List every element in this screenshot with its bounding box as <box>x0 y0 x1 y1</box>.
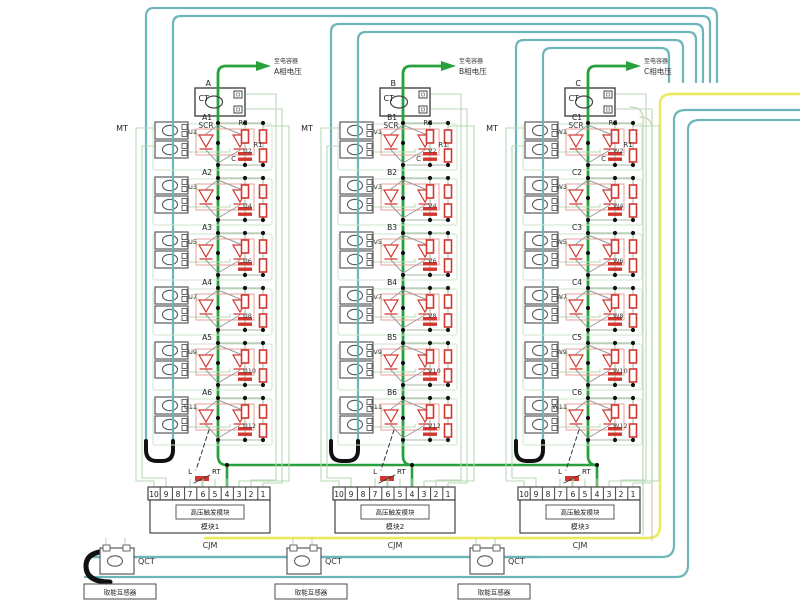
resistor-r1-body <box>445 204 452 217</box>
thyristor-label: W4 <box>613 202 624 210</box>
resistor-r1-body <box>445 295 452 308</box>
r1-label: R1 <box>253 141 262 149</box>
junction-dot <box>446 176 450 180</box>
terminal-number: 3 <box>237 490 242 499</box>
junction-dot <box>216 306 220 310</box>
resistor-r1-body <box>260 259 267 272</box>
capacitor-plate <box>238 378 252 381</box>
thyristor-label: U1 <box>188 128 197 136</box>
junction-dot <box>586 361 590 365</box>
valve-stage: A6U11U12 <box>153 388 272 445</box>
junction-dot <box>401 141 405 145</box>
node-label: C2 <box>572 168 582 177</box>
resistor-r1-body <box>445 405 452 418</box>
resistor-r2-body <box>242 240 249 253</box>
gate-pin-square <box>552 309 557 314</box>
ct-label: CT <box>384 94 395 103</box>
thyristor-label: V10 <box>428 367 441 375</box>
thyristor-symbol <box>199 135 213 147</box>
junction-dot <box>613 163 617 167</box>
valve-stage: A1U1U2SCRR2R1C <box>153 113 272 170</box>
cap-label: C <box>416 155 421 163</box>
junction-dot <box>586 141 590 145</box>
junction-dot <box>631 218 635 222</box>
resistor-r1-body <box>630 204 637 217</box>
thyristor-symbol <box>199 245 213 257</box>
rt-label: RT <box>397 468 406 476</box>
gate-pin-square <box>367 242 372 247</box>
thyristor-symbol <box>384 245 398 257</box>
junction-dot <box>446 286 450 290</box>
resistor-r2-body <box>242 185 249 198</box>
resistor-r2-body <box>612 405 619 418</box>
thyristor-label: V1 <box>373 128 382 136</box>
valve-stage: B4V7V8 <box>338 278 457 335</box>
capacitor-plate <box>608 378 622 381</box>
terminal-number: 10 <box>519 490 529 499</box>
gate-pin-square <box>182 419 187 424</box>
gate-pin-square <box>367 352 372 357</box>
module-number-label: 模块1 <box>201 522 219 531</box>
junction-dot <box>428 176 432 180</box>
resistor-r1-body <box>630 424 637 437</box>
schematic-canvas: 至电容器A相电压ACTMTA1U1U2SCRR2R1CA2U3U4A3U5U6A… <box>0 0 800 600</box>
module-number-label: 模块3 <box>571 522 589 531</box>
junction-dot <box>586 286 590 290</box>
cable-u-bend <box>331 441 358 461</box>
trigger-module-inner-label: 高压触发模块 <box>191 508 231 517</box>
resistor-r1-body <box>630 185 637 198</box>
phase-column-C: 至电容器C相电压CCTMTC1W1W2SCRR2R1CC2W3W4C3W5W6C… <box>486 40 683 550</box>
gate-pin-square <box>552 151 557 156</box>
junction-dot <box>631 341 635 345</box>
resistor-r1-body <box>630 369 637 382</box>
resistor-r1-body <box>260 295 267 308</box>
junction-dot <box>216 231 220 235</box>
l-label: L <box>558 468 562 476</box>
resistor-r1-body <box>260 185 267 198</box>
thyristor-label: W11 <box>552 403 567 411</box>
scr-label: SCR <box>568 121 583 130</box>
terminal-number: 7 <box>373 490 378 499</box>
valve-stage: C1W1W2SCRR2R1C <box>523 113 642 170</box>
gate-pin-square <box>182 309 187 314</box>
dashed-thermal-link <box>196 430 209 470</box>
bottom-device: 取能互感器 <box>84 584 156 599</box>
gate-pin-square <box>182 199 187 204</box>
junction-dot <box>613 273 617 277</box>
gate-pin-square <box>367 180 372 185</box>
circuit-schematic: 至电容器A相电压ACTMTA1U1U2SCRR2R1CA2U3U4A3U5U6A… <box>0 0 800 600</box>
ct-terminal-square <box>419 91 427 98</box>
junction-dot <box>261 121 265 125</box>
gate-pin-square <box>182 345 187 350</box>
terminal-number: 1 <box>261 490 266 499</box>
gate-pin-square <box>367 206 372 211</box>
thyristor-symbol <box>384 300 398 312</box>
valve-stage: A2U3U4 <box>153 168 272 225</box>
trigger-module-inner-label: 高压触发模块 <box>376 508 416 517</box>
resistor-r1-body <box>445 369 452 382</box>
valve-stage: C2W3W4 <box>523 168 642 225</box>
junction-dot <box>401 328 405 332</box>
junction-dot <box>446 218 450 222</box>
cap-label: C <box>231 155 236 163</box>
junction-dot <box>216 383 220 387</box>
junction-dot <box>216 196 220 200</box>
thyristor-label: U5 <box>188 238 197 246</box>
gate-pin-square <box>552 364 557 369</box>
resistor-r1-body <box>630 350 637 363</box>
phase-arrow-line <box>218 66 256 90</box>
thyristor-label: V8 <box>428 312 437 320</box>
junction-dot <box>243 341 247 345</box>
gate-pin-square <box>367 426 372 431</box>
terminal-number: 9 <box>534 490 539 499</box>
capacitor-plate <box>238 213 252 216</box>
terminal-number: 10 <box>334 490 344 499</box>
terminal-number: 8 <box>546 490 551 499</box>
junction-dot <box>243 286 247 290</box>
resistor-r2-body <box>427 130 434 143</box>
thyristor-label: W5 <box>556 238 567 246</box>
terminal-number: 3 <box>422 490 427 499</box>
node-label: B2 <box>387 168 397 177</box>
terminal-number: 6 <box>201 490 206 499</box>
ct-terminal-square <box>604 91 612 98</box>
valve-stage: A3U5U6 <box>153 223 272 280</box>
gate-pin-square <box>552 206 557 211</box>
thyristor-symbol <box>384 135 398 147</box>
junction-dot <box>243 328 247 332</box>
valve-stage: B5V9V10 <box>338 333 457 390</box>
resistor-r2-body <box>242 350 249 363</box>
thyristor-label: W2 <box>613 147 624 155</box>
gate-pin-square <box>367 132 372 137</box>
qct-label: QCT <box>138 557 155 566</box>
junction-dot <box>261 438 265 442</box>
resistor-r2-body <box>242 295 249 308</box>
arrow-label-line2: A相电压 <box>274 66 302 76</box>
node-label: A3 <box>202 223 212 232</box>
gate-pin-square <box>182 316 187 321</box>
valve-stage: B3V5V6 <box>338 223 457 280</box>
qct-box <box>287 548 321 574</box>
junction-dot <box>428 163 432 167</box>
resistor-r2-body <box>612 350 619 363</box>
terminal-number: 2 <box>249 490 254 499</box>
rt-label: RT <box>582 468 591 476</box>
junction-dot <box>613 438 617 442</box>
junction-dot <box>586 231 590 235</box>
node-label: A6 <box>202 388 212 397</box>
gate-pin-square <box>552 371 557 376</box>
r1-label: R1 <box>438 141 447 149</box>
cjm-label: CJM <box>203 541 218 550</box>
resistor-r2-body <box>242 130 249 143</box>
junction-dot <box>446 121 450 125</box>
junction-dot <box>401 196 405 200</box>
gate-pin-square <box>182 235 187 240</box>
bottom-device-label: 取能互感器 <box>104 588 137 597</box>
junction-dot <box>401 361 405 365</box>
resistor-r1-body <box>260 240 267 253</box>
junction-dot <box>613 286 617 290</box>
terminal-number: 6 <box>571 490 576 499</box>
junction-dot <box>586 251 590 255</box>
junction-dot <box>586 196 590 200</box>
junction-dot <box>261 231 265 235</box>
thyristor-label: U8 <box>243 312 252 320</box>
valve-stage: B1V1V2SCRR2R1C <box>338 113 457 170</box>
resistor-r1-body <box>630 295 637 308</box>
thyristor-label: W6 <box>613 257 624 265</box>
terminal-number: 2 <box>434 490 439 499</box>
valve-stage: B2V3V4 <box>338 168 457 225</box>
resistor-r2-body <box>612 130 619 143</box>
junction-dot <box>631 273 635 277</box>
gate-pin-square <box>367 254 372 259</box>
terminal-number: 4 <box>225 490 230 499</box>
junction-dot <box>586 176 590 180</box>
gate-pin-square <box>182 187 187 192</box>
gate-pin-square <box>367 364 372 369</box>
terminal-number: 5 <box>213 490 218 499</box>
node-label: A5 <box>202 333 212 342</box>
capacitor-plate <box>423 213 437 216</box>
gate-pin-square <box>552 144 557 149</box>
gate-pin-square <box>552 419 557 424</box>
junction-dot <box>216 218 220 222</box>
resistor-r1-body <box>630 259 637 272</box>
thyristor-symbol <box>569 410 583 422</box>
r2-label: R2 <box>423 119 432 127</box>
junction-dot <box>261 273 265 277</box>
qct-pin-square <box>473 545 480 551</box>
thyristor-label: W10 <box>613 367 628 375</box>
junction-dot <box>401 341 405 345</box>
junction-dot <box>446 341 450 345</box>
junction-dot <box>446 231 450 235</box>
junction-dot <box>586 273 590 277</box>
valve-stage: A5U9U10 <box>153 333 272 390</box>
junction-dot <box>261 286 265 290</box>
resistor-r1-body <box>260 350 267 363</box>
gate-pin-square <box>367 199 372 204</box>
bottom-device: 取能互感器 <box>458 584 530 599</box>
resistor-r1-body <box>260 405 267 418</box>
terminal-number: 9 <box>164 490 169 499</box>
resistor-r1-body <box>445 240 452 253</box>
junction-dot <box>631 396 635 400</box>
gate-pin-square <box>182 364 187 369</box>
junction-dot <box>401 273 405 277</box>
gate-pin-square <box>182 290 187 295</box>
qct-box <box>100 548 134 574</box>
capacitor-plate <box>608 158 622 161</box>
thyristor-label: U12 <box>243 422 256 430</box>
junction-dot <box>613 396 617 400</box>
junction-dot <box>401 306 405 310</box>
thyristor-label: W1 <box>556 128 567 136</box>
l-label: L <box>188 468 192 476</box>
thyristor-label: V4 <box>428 202 437 210</box>
gate-pin-square <box>182 180 187 185</box>
resistor-r1-body <box>630 314 637 327</box>
gate-pin-square <box>182 242 187 247</box>
capacitor-plate <box>423 158 437 161</box>
junction-dot <box>216 286 220 290</box>
gate-pin-square <box>552 426 557 431</box>
node-label: B5 <box>387 333 397 342</box>
r2-label: R2 <box>238 119 247 127</box>
resistor-r1-body <box>445 149 452 162</box>
arrow-label-line2: C相电压 <box>644 66 672 76</box>
terminal-number: 3 <box>607 490 612 499</box>
junction-dot <box>261 341 265 345</box>
junction-dot <box>225 463 229 467</box>
thyristor-label: U10 <box>243 367 256 375</box>
thyristor-label: V5 <box>373 238 382 246</box>
phase-arrow-head <box>256 61 271 71</box>
top-node-label: B <box>391 79 397 88</box>
junction-dot <box>243 438 247 442</box>
top-node-label: A <box>206 79 212 88</box>
gate-pin-square <box>367 345 372 350</box>
valve-stage: C4W7W8 <box>523 278 642 335</box>
thyristor-symbol <box>384 410 398 422</box>
resistor-r1-body <box>260 204 267 217</box>
resistor-r2-body <box>612 185 619 198</box>
resistor-r2-body <box>242 405 249 418</box>
capacitor-plate <box>423 323 437 326</box>
yellow-bus <box>205 94 800 538</box>
junction-dot <box>586 121 590 125</box>
terminal-number: 8 <box>361 490 366 499</box>
cap-label: C <box>601 155 606 163</box>
thyristor-symbol <box>569 245 583 257</box>
gate-pin-square <box>367 309 372 314</box>
junction-dot <box>446 163 450 167</box>
thyristor-symbol <box>569 300 583 312</box>
junction-dot <box>261 383 265 387</box>
gate-pin-square <box>182 206 187 211</box>
thyristor-label: V12 <box>428 422 441 430</box>
junction-dot <box>613 231 617 235</box>
module-number-label: 模块2 <box>386 522 404 531</box>
resistor-r1-body <box>445 314 452 327</box>
ct-terminal-square <box>604 106 612 113</box>
node-label: A4 <box>202 278 212 287</box>
resistor-r1-body <box>630 240 637 253</box>
cjm-label: CJM <box>388 541 403 550</box>
capacitor-plate <box>423 433 437 436</box>
qct-pin-square <box>103 545 110 551</box>
gate-pin-square <box>367 187 372 192</box>
ct-label: CT <box>569 94 580 103</box>
thyristor-symbol <box>569 355 583 367</box>
junction-dot <box>401 383 405 387</box>
qct-pin-square <box>123 545 130 551</box>
junction-dot <box>243 176 247 180</box>
capacitor-plate <box>608 433 622 436</box>
capacitor-plate <box>423 378 437 381</box>
junction-dot <box>216 141 220 145</box>
junction-dot <box>586 438 590 442</box>
thyristor-label: U3 <box>188 183 197 191</box>
junction-dot <box>401 396 405 400</box>
junction-dot <box>401 218 405 222</box>
junction-dot <box>613 383 617 387</box>
terminal-number: 6 <box>386 490 391 499</box>
resistor-r1-body <box>630 405 637 418</box>
node-label: C3 <box>572 223 582 232</box>
arrow-label-line1: 至电容器 <box>274 57 298 65</box>
gate-pin-square <box>182 261 187 266</box>
terminal-number: 7 <box>558 490 563 499</box>
junction-dot <box>428 396 432 400</box>
terminal-number: 1 <box>631 490 636 499</box>
junction-dot <box>401 416 405 420</box>
thyristor-symbol <box>384 355 398 367</box>
junction-dot <box>586 328 590 332</box>
capacitor-plate <box>238 158 252 161</box>
junction-dot <box>243 218 247 222</box>
node-label: C4 <box>572 278 582 287</box>
thyristor-label: U11 <box>184 403 197 411</box>
phase-arrow-head <box>626 61 641 71</box>
junction-dot <box>631 176 635 180</box>
resistor-r1-body <box>445 185 452 198</box>
junction-dot <box>595 463 599 467</box>
junction-dot <box>216 163 220 167</box>
junction-dot <box>216 121 220 125</box>
thyristor-label: W12 <box>613 422 628 430</box>
capacitor-plate <box>238 433 252 436</box>
phase-arrow-head <box>441 61 456 71</box>
junction-dot <box>613 328 617 332</box>
rt-label: RT <box>212 468 221 476</box>
junction-dot <box>631 438 635 442</box>
ct-terminal-square <box>234 91 242 98</box>
capacitor-plate <box>608 213 622 216</box>
arrow-label-line2: B相电压 <box>459 66 487 76</box>
capacitor-plate <box>608 268 622 271</box>
junction-dot <box>586 383 590 387</box>
mt-label: MT <box>116 124 128 133</box>
thyristor-label: V3 <box>373 183 382 191</box>
junction-dot <box>261 328 265 332</box>
thyristor-label: V7 <box>373 293 382 301</box>
thyristor-symbol <box>199 190 213 202</box>
gate-pin-square <box>367 151 372 156</box>
gate-pin-square <box>367 371 372 376</box>
thyristor-symbol <box>199 410 213 422</box>
resistor-r2-body <box>612 295 619 308</box>
thyristor-label: U6 <box>243 257 252 265</box>
junction-dot <box>428 438 432 442</box>
qct-pin-square <box>310 545 317 551</box>
junction-dot <box>261 163 265 167</box>
gate-pin-square <box>367 261 372 266</box>
thyristor-label: W3 <box>556 183 567 191</box>
valve-stage: B6V11V12 <box>338 388 457 445</box>
capacitor-plate <box>608 323 622 326</box>
thyristor-label: V9 <box>373 348 382 356</box>
node-label: B4 <box>387 278 397 287</box>
resistor-r1-body <box>445 424 452 437</box>
resistor-r1-body <box>445 259 452 272</box>
